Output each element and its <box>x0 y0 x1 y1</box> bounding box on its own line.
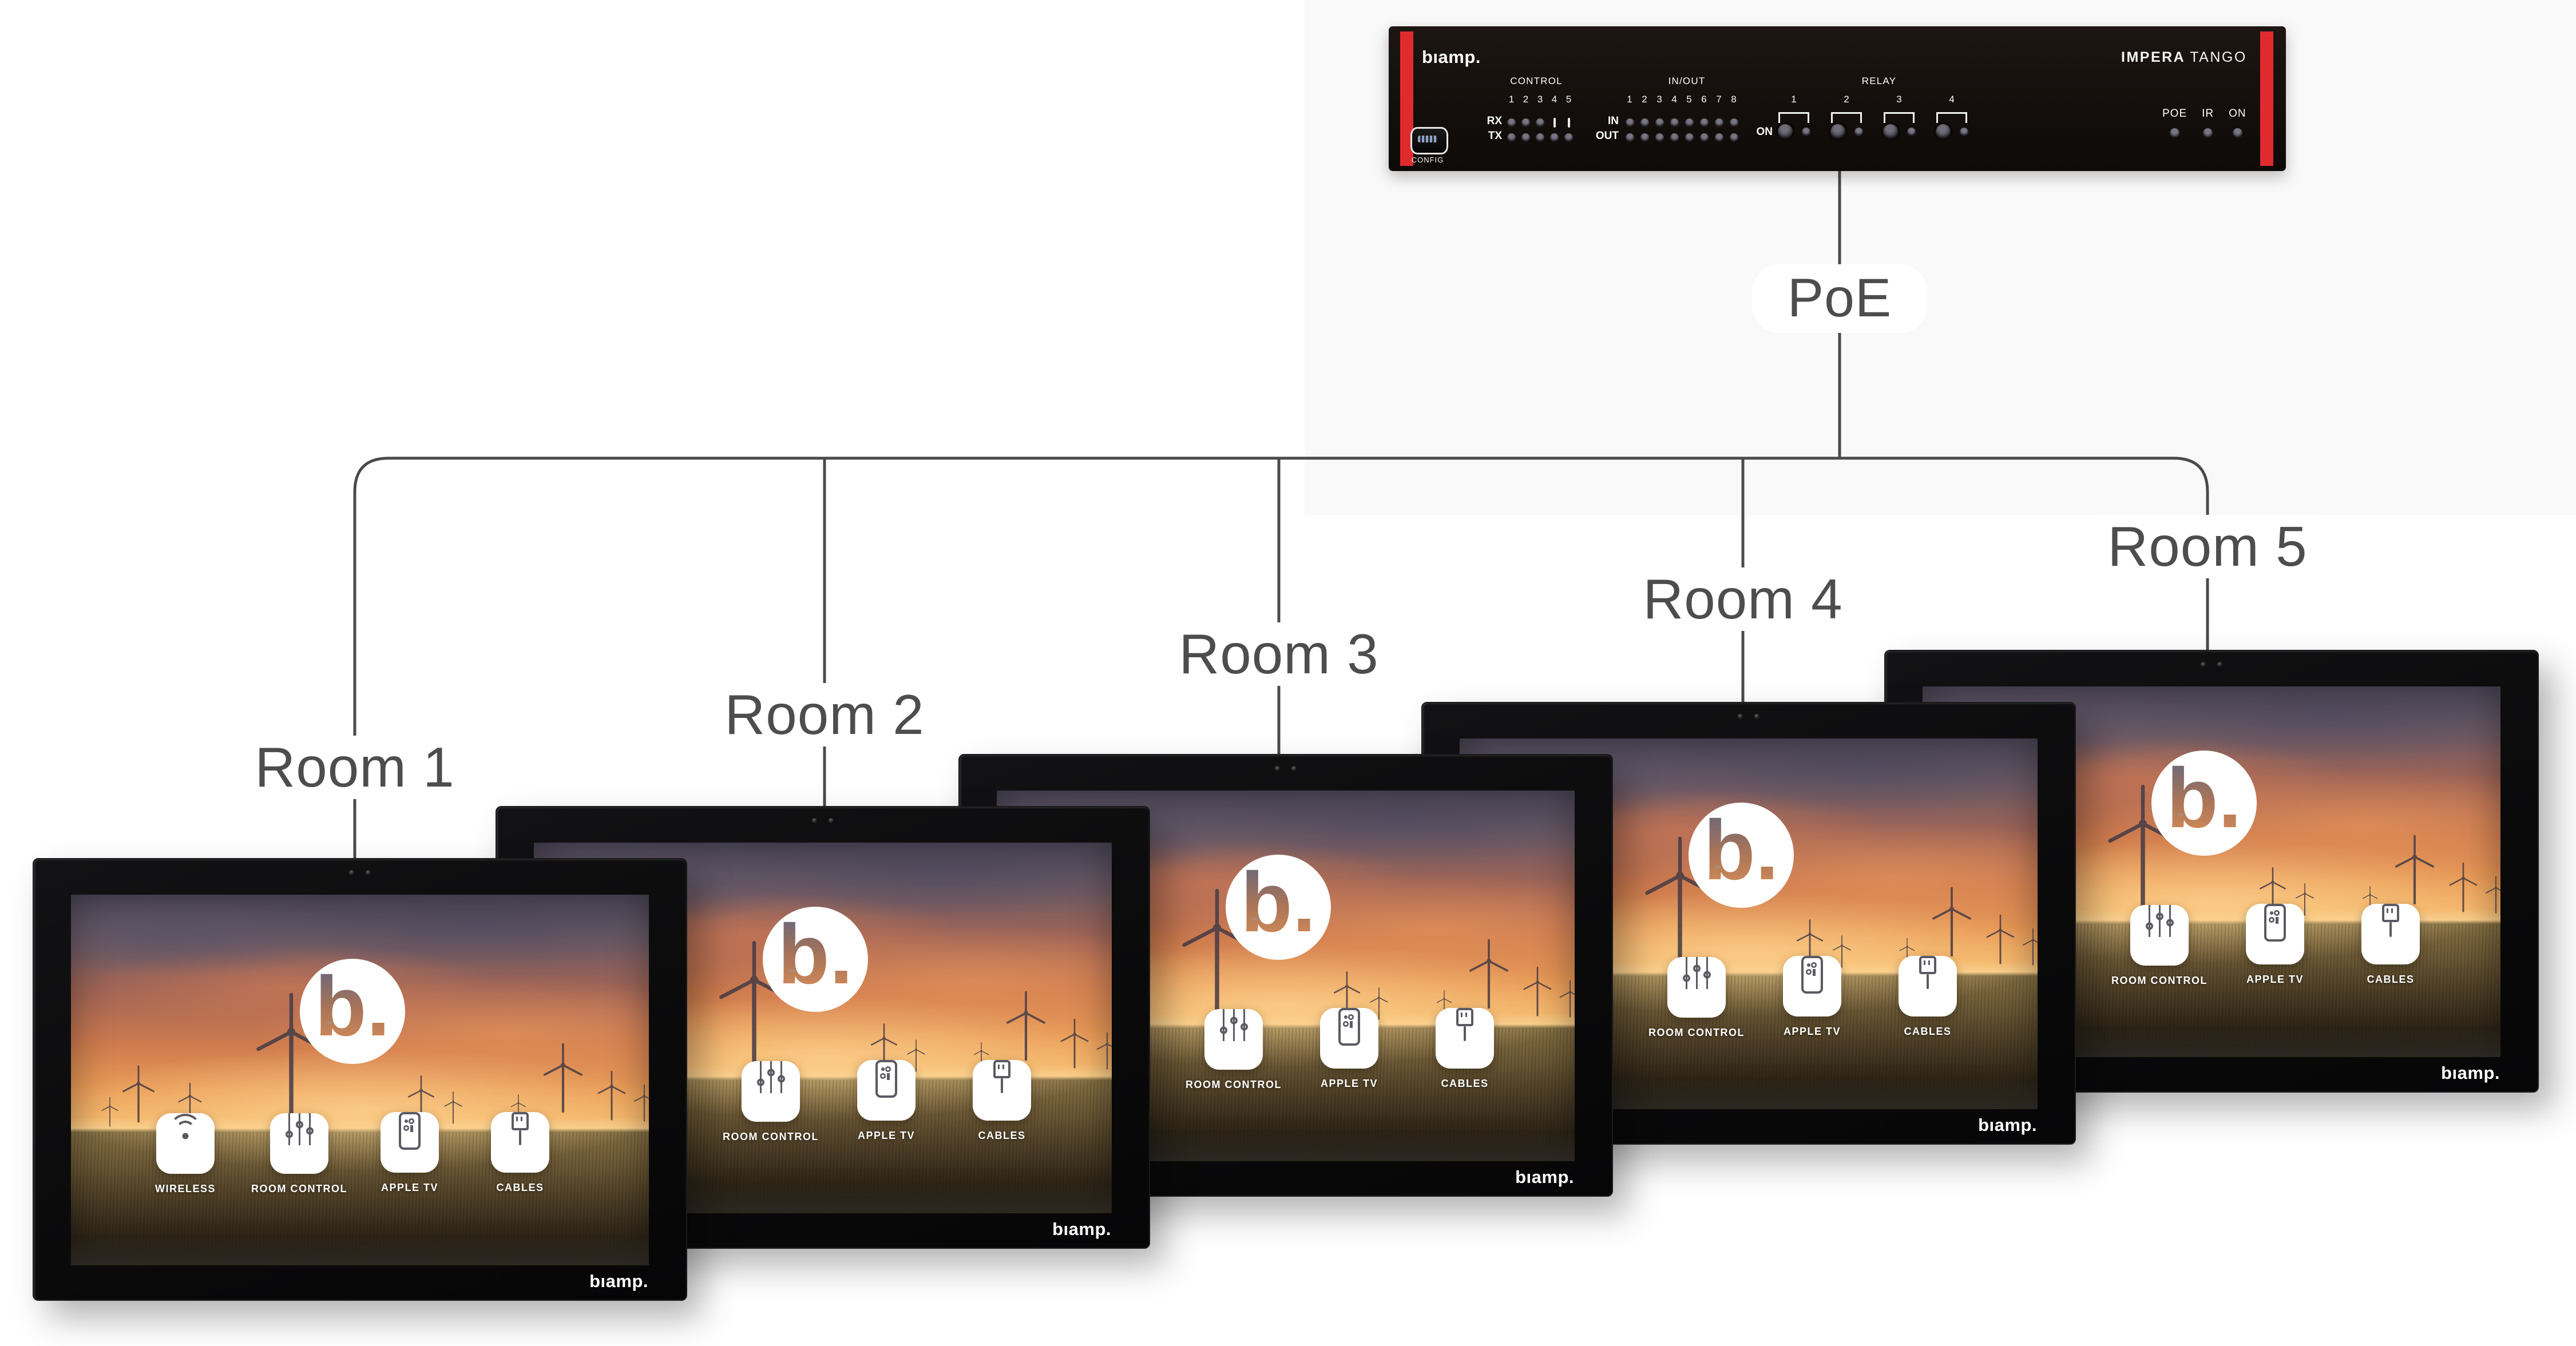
camera-dots <box>1275 766 1297 771</box>
camera-icon <box>2201 662 2206 667</box>
panel-button-label: ROOM CONTROL <box>1174 1079 1294 1091</box>
channel-number: 6 <box>1697 94 1711 105</box>
rx-label: RX <box>1469 115 1502 128</box>
panel-button-label: APPLE TV <box>1752 1026 1872 1038</box>
device-model-title: IMPERATANGO <box>2121 49 2247 66</box>
channel-number: 1 <box>1622 94 1637 105</box>
panel-button-tile[interactable] <box>491 1112 549 1173</box>
panel-button-tile[interactable] <box>1783 956 1841 1017</box>
channel-number: 2 <box>1637 94 1652 105</box>
on-status-label: ON <box>2229 108 2246 120</box>
camera-icon <box>1738 714 1743 719</box>
panel-button-tile[interactable] <box>156 1113 215 1174</box>
biamp-logo: bıamp. <box>589 1271 648 1292</box>
cable-icon <box>1918 956 1937 990</box>
panel-button-label: CABLES <box>2331 974 2451 986</box>
room-5-label: Room 5 <box>2092 515 2322 578</box>
remote-icon <box>2264 904 2286 942</box>
relay-button <box>1883 124 1898 139</box>
led-indicator <box>2233 128 2242 138</box>
led-indicator <box>1907 128 1916 136</box>
camera-dots <box>2201 662 2222 667</box>
panel-button-tile[interactable] <box>2361 904 2420 964</box>
led-indicator <box>1802 128 1810 136</box>
panel-button[interactable]: ROOM CONTROL <box>1174 995 1294 1091</box>
led-indicator <box>1655 118 1664 127</box>
panel-button-tile[interactable] <box>1667 957 1726 1018</box>
channel-number: 3 <box>1873 94 1925 105</box>
remote-icon <box>399 1112 421 1150</box>
led-indicator <box>1655 133 1664 142</box>
camera-icon <box>366 870 371 875</box>
camera-icon <box>2217 662 2222 667</box>
panel-button[interactable]: CABLES <box>1868 943 1988 1038</box>
panel-button[interactable]: APPLE TV <box>350 1099 470 1194</box>
led-indicator <box>2203 128 2213 138</box>
on-status: ON <box>2229 108 2246 138</box>
remote-icon <box>875 1060 897 1098</box>
panel-button[interactable]: WIRELESS <box>125 1099 245 1195</box>
ir-status: IR <box>2202 108 2214 138</box>
relay-bracket <box>1778 112 1809 123</box>
panel-button-tile[interactable] <box>1436 1008 1494 1069</box>
panel-button[interactable]: ROOM CONTROL <box>2099 891 2220 987</box>
camera-icon <box>1754 714 1759 719</box>
panel-button-label: APPLE TV <box>826 1130 946 1142</box>
channel-number: 3 <box>1652 94 1667 105</box>
sliders-icon <box>2143 905 2175 937</box>
inout-section-label: IN/OUT <box>1630 76 1744 87</box>
remote-icon <box>1801 956 1823 994</box>
panel-button[interactable]: APPLE TV <box>826 1047 946 1142</box>
camera-icon <box>349 870 354 875</box>
channel-number: 5 <box>1682 94 1697 105</box>
cable-icon <box>2381 904 2400 938</box>
led-indicator <box>1564 133 1573 142</box>
poe-label: PoE <box>1752 264 1928 333</box>
panel-button[interactable]: CABLES <box>2331 891 2451 986</box>
room-1-screen: b.™ WIRELESS ROOM CONTROL APPLE TV CABLE… <box>71 895 649 1265</box>
panel-button-label: CABLES <box>1868 1026 1988 1038</box>
channel-number: 2 <box>1820 94 1873 105</box>
led-indicator <box>1715 133 1723 142</box>
panel-button[interactable]: APPLE TV <box>1752 943 1872 1038</box>
cable-icon <box>992 1060 1012 1094</box>
panel-button-tile[interactable] <box>857 1060 916 1121</box>
led-indicator <box>1700 118 1709 127</box>
biamp-logo: bıamp. <box>1052 1219 1111 1240</box>
panel-button-tile[interactable] <box>1204 1009 1263 1070</box>
panel-button[interactable]: CABLES <box>1405 995 1525 1090</box>
led-indicator <box>1730 133 1738 142</box>
control-channel-numbers: 12345 <box>1504 94 1576 105</box>
led-indicator <box>1507 133 1516 142</box>
biamp-logo: bıamp. <box>2441 1063 2500 1083</box>
diagram-canvas: bıamp. IMPERATANGO CONTROL 12345 RX TX I… <box>0 0 2576 1346</box>
panel-button-tile[interactable] <box>1899 956 1957 1017</box>
panel-button-label: CABLES <box>942 1130 1062 1142</box>
panel-button[interactable]: CABLES <box>942 1047 1062 1142</box>
relay-section-label: RELAY <box>1822 76 1936 87</box>
sliders-icon <box>283 1113 315 1145</box>
panel-button[interactable]: ROOM CONTROL <box>1636 943 1757 1039</box>
sliders-icon <box>1218 1009 1250 1041</box>
button-row: WIRELESS ROOM CONTROL APPLE TV CABLES <box>71 895 649 1265</box>
room-3-label: Room 3 <box>1164 622 1393 686</box>
relay-button <box>1778 124 1793 139</box>
camera-icon <box>1291 766 1297 771</box>
relay-buttons <box>1767 122 1978 141</box>
panel-button-label: APPLE TV <box>1289 1078 1409 1090</box>
led-indicator <box>1521 118 1530 127</box>
panel-button-tile[interactable] <box>973 1060 1031 1121</box>
rx-led-row <box>1504 117 1576 128</box>
in-label: IN <box>1587 115 1619 128</box>
red-accent-stripe <box>2260 31 2273 166</box>
panel-button[interactable]: CABLES <box>460 1099 580 1194</box>
panel-button-label: APPLE TV <box>350 1182 470 1194</box>
led-indicator <box>1626 133 1634 142</box>
model-primary: IMPERA <box>2121 49 2185 65</box>
panel-button[interactable]: APPLE TV <box>2215 891 2335 986</box>
config-label: CONFIG <box>1405 156 1451 164</box>
out-label: OUT <box>1587 130 1619 142</box>
wifi-icon <box>169 1113 201 1146</box>
poe-status: POE <box>2162 108 2187 138</box>
mini-usb-port <box>1410 127 1448 154</box>
panel-button-label: APPLE TV <box>2215 974 2335 986</box>
channel-number: 7 <box>1711 94 1726 105</box>
remote-icon <box>1338 1008 1360 1046</box>
channel-number: 1 <box>1504 94 1519 105</box>
out-led-row <box>1622 132 1741 143</box>
panel-button[interactable]: APPLE TV <box>1289 995 1409 1090</box>
channel-number: 4 <box>1547 94 1562 105</box>
channel-number: 2 <box>1519 94 1533 105</box>
panel-button-label: WIRELESS <box>125 1183 245 1195</box>
channel-number: 1 <box>1767 94 1820 105</box>
camera-icon <box>829 818 834 823</box>
panel-button-label: ROOM CONTROL <box>239 1183 359 1195</box>
channel-number: 5 <box>1562 94 1576 105</box>
panel-button-label: ROOM CONTROL <box>1636 1027 1757 1039</box>
sliders-icon <box>1681 957 1713 989</box>
led-indicator <box>1640 118 1649 127</box>
led-indicator <box>1685 118 1694 127</box>
led-indicator <box>2170 128 2179 138</box>
led-indicator <box>1550 133 1559 142</box>
biamp-logo: bıamp. <box>1515 1167 1574 1188</box>
tx-led-row <box>1504 132 1576 143</box>
panel-button-tile[interactable] <box>381 1112 439 1173</box>
panel-button-label: ROOM CONTROL <box>711 1131 831 1143</box>
biamp-logo: bıamp. <box>1422 47 1481 68</box>
status-led-group: POE IR ON <box>2162 108 2246 138</box>
led-indicator <box>1685 133 1694 142</box>
room-4-label: Room 4 <box>1628 567 1857 631</box>
camera-dots <box>1738 714 1759 719</box>
biamp-logo: bıamp. <box>1978 1115 2037 1135</box>
panel-button-label: CABLES <box>460 1182 580 1194</box>
channel-number: 4 <box>1667 94 1682 105</box>
led-indicator <box>1730 118 1738 127</box>
led-indicator <box>1536 118 1544 127</box>
relay-button <box>1936 124 1951 139</box>
room-2-label: Room 2 <box>710 683 939 747</box>
camera-dots <box>812 818 834 823</box>
channel-number: 3 <box>1533 94 1547 105</box>
panel-button[interactable]: ROOM CONTROL <box>239 1099 359 1195</box>
impera-tango-controller: bıamp. IMPERATANGO CONTROL 12345 RX TX I… <box>1389 26 2286 171</box>
led-indicator <box>1700 133 1709 142</box>
panel-button-tile[interactable] <box>2130 905 2189 966</box>
led-indicator <box>1521 133 1530 142</box>
led-indicator <box>1536 133 1544 142</box>
led-indicator <box>1640 133 1649 142</box>
relay-bracket <box>1936 112 1967 123</box>
ir-window <box>1568 118 1570 128</box>
camera-icon <box>812 818 817 823</box>
panel-button-tile[interactable] <box>270 1113 328 1174</box>
led-indicator <box>1715 118 1723 127</box>
ir-window <box>1553 118 1556 128</box>
room-1-label: Room 1 <box>240 736 469 799</box>
led-indicator <box>1507 118 1516 127</box>
relay-bracket <box>1884 112 1915 123</box>
panel-button-tile[interactable] <box>2246 904 2304 964</box>
panel-button-label: CABLES <box>1405 1078 1525 1090</box>
ir-status-label: IR <box>2202 108 2214 120</box>
panel-button-tile[interactable] <box>1320 1008 1378 1069</box>
control-section-label: CONTROL <box>1479 76 1594 87</box>
tx-label: TX <box>1469 130 1502 142</box>
panel-button[interactable]: ROOM CONTROL <box>711 1047 831 1143</box>
camera-dots <box>349 870 371 875</box>
relay-brackets <box>1767 112 1978 123</box>
camera-icon <box>1275 766 1280 771</box>
room-1-touch-panel: b.™ WIRELESS ROOM CONTROL APPLE TV CABLE… <box>33 858 687 1301</box>
in-led-row <box>1622 117 1741 128</box>
poe-status-label: POE <box>2162 108 2187 120</box>
relay-channel-numbers: 1234 <box>1767 94 1978 105</box>
model-secondary: TANGO <box>2190 49 2247 65</box>
sliders-icon <box>755 1061 787 1093</box>
led-indicator <box>1670 133 1679 142</box>
inout-channel-numbers: 12345678 <box>1622 94 1741 105</box>
cable-icon <box>510 1112 530 1146</box>
panel-button-tile[interactable] <box>742 1061 800 1122</box>
channel-number: 4 <box>1925 94 1978 105</box>
led-indicator <box>1626 118 1634 127</box>
channel-number: 8 <box>1726 94 1741 105</box>
cable-icon <box>1455 1008 1475 1042</box>
led-indicator <box>1670 118 1679 127</box>
panel-button-label: ROOM CONTROL <box>2099 975 2220 987</box>
relay-button <box>1830 124 1845 139</box>
relay-bracket <box>1831 112 1862 123</box>
led-indicator <box>1960 128 1968 136</box>
led-indicator <box>1854 128 1863 136</box>
